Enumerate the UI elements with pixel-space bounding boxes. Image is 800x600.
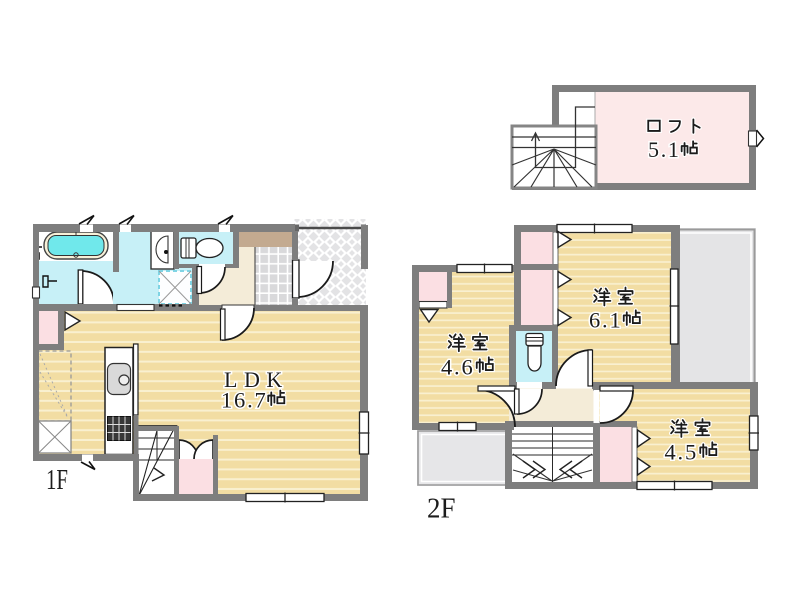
svg-text:16.7: 16.7: [221, 388, 268, 413]
svg-text:4.5: 4.5: [665, 440, 699, 465]
svg-text:5.1: 5.1: [648, 137, 681, 162]
svg-text:1F: 1F: [46, 464, 68, 496]
svg-text:2F: 2F: [427, 493, 456, 525]
svg-text:4.6: 4.6: [441, 355, 475, 380]
svg-text:6.1: 6.1: [589, 308, 623, 333]
